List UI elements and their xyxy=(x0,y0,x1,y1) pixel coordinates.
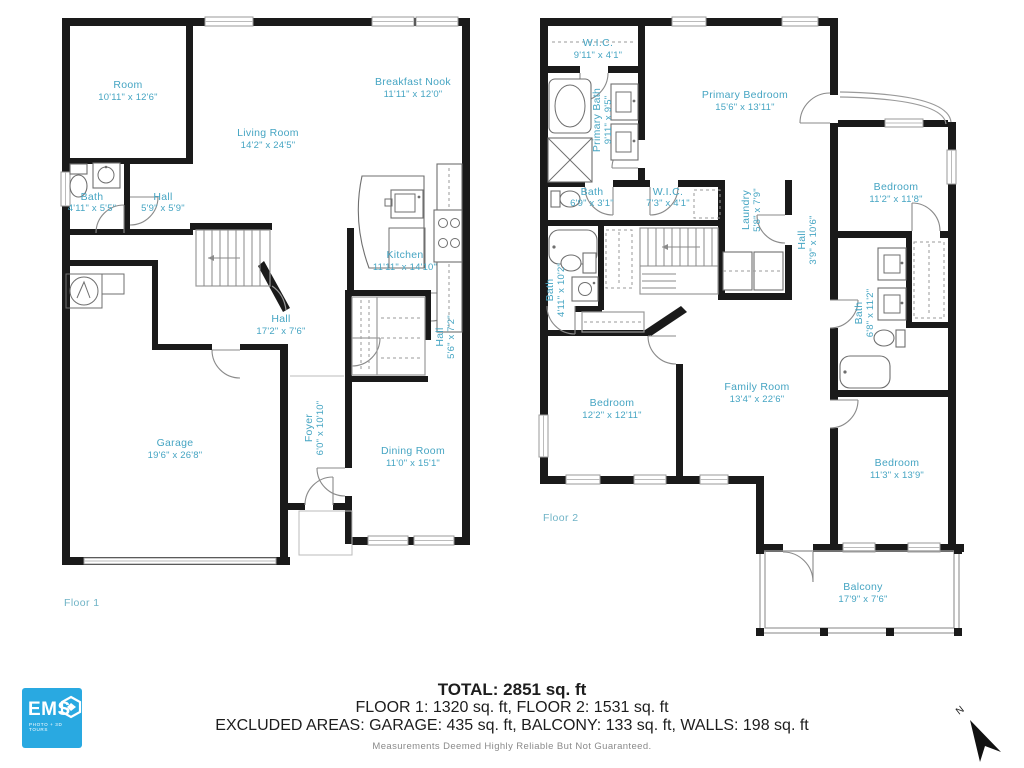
room-label-hall-long: Hall 17'2" x 7'6" xyxy=(256,313,305,337)
svg-text:Family Room: Family Room xyxy=(724,381,789,393)
svg-text:9'11" x 4'1": 9'11" x 4'1" xyxy=(574,50,623,61)
room-label-breakfast: Breakfast Nook 11'11" x 12'0" xyxy=(375,76,451,100)
svg-text:Laundry: Laundry xyxy=(740,190,752,230)
svg-text:Bath: Bath xyxy=(581,186,604,198)
svg-text:7'3" x 4'1": 7'3" x 4'1" xyxy=(646,198,690,209)
floorplan-canvas: Room 10'11" x 12'6" Living Room 14'2" x … xyxy=(0,0,1024,768)
svg-text:Garage: Garage xyxy=(157,437,194,449)
room-label-bedroom-br: Bedroom 11'3" x 13'9" xyxy=(870,457,924,481)
svg-text:9'11" x 9'5": 9'11" x 9'5" xyxy=(603,96,614,145)
svg-text:14'2" x 24'5": 14'2" x 24'5" xyxy=(241,140,296,151)
svg-text:Foyer: Foyer xyxy=(303,414,315,443)
room-label-dining: Dining Room 11'0" x 15'1" xyxy=(381,445,445,469)
floor2-stairs xyxy=(640,228,718,294)
floor2-doors xyxy=(547,73,940,582)
svg-text:Room: Room xyxy=(113,79,142,91)
room-label-bath-right: Bath 6'8" x 11'2" xyxy=(853,289,876,338)
svg-text:Bath: Bath xyxy=(544,279,556,302)
stove-icon xyxy=(434,210,462,262)
svg-text:10'11" x 12'6": 10'11" x 12'6" xyxy=(98,92,157,103)
svg-text:5'8" x 7'9": 5'8" x 7'9" xyxy=(752,188,763,232)
svg-text:19'6" x 26'8": 19'6" x 26'8" xyxy=(148,450,203,461)
entry-porch xyxy=(299,511,352,555)
summary-disclaimer: Measurements Deemed Highly Reliable But … xyxy=(0,741,1024,752)
svg-text:Bedroom: Bedroom xyxy=(874,181,919,193)
room-label-bedroom-tr: Bedroom 11'2" x 11'8" xyxy=(869,181,922,205)
door-arc xyxy=(547,73,940,582)
svg-text:Bedroom: Bedroom xyxy=(875,457,920,469)
svg-text:Bedroom: Bedroom xyxy=(590,397,635,409)
svg-text:5'9" x 5'9": 5'9" x 5'9" xyxy=(141,203,185,214)
room-label-hall-small: Hall 5'9" x 5'9" xyxy=(141,191,185,214)
svg-text:Primary Bedroom: Primary Bedroom xyxy=(702,89,788,101)
svg-text:4'11" x 10'2": 4'11" x 10'2" xyxy=(556,263,567,317)
svg-text:17'9" x 7'6": 17'9" x 7'6" xyxy=(838,594,887,605)
svg-text:W.I.C.: W.I.C. xyxy=(583,37,613,49)
room-label-bedroom-left: Bedroom 12'2" x 12'11" xyxy=(582,397,641,421)
room-label-laundry: Laundry 5'8" x 7'9" xyxy=(740,188,763,232)
room-label-balcony: Balcony 17'9" x 7'6" xyxy=(838,581,887,605)
room-label-family: Family Room 13'4" x 22'6" xyxy=(724,381,789,405)
water-heater-icon xyxy=(66,274,124,308)
floorplan-page: Room 10'11" x 12'6" Living Room 14'2" x … xyxy=(0,0,1024,768)
svg-text:Primary Bath: Primary Bath xyxy=(591,88,603,152)
room-label-garage: Garage 19'6" x 26'8" xyxy=(148,437,203,461)
linen-closet xyxy=(914,242,944,318)
room-label-foyer: Foyer 6'0" x 10'10" xyxy=(303,401,326,456)
svg-text:6'9" x 3'1": 6'9" x 3'1" xyxy=(570,198,614,209)
svg-text:Hall: Hall xyxy=(434,327,446,346)
svg-text:11'11" x 12'0": 11'11" x 12'0" xyxy=(384,89,443,100)
room-label-hall: Hall 3'9" x 10'6" xyxy=(796,215,819,264)
logo-hexagon-icon xyxy=(58,694,84,720)
room-label-primary-bath: Primary Bath 9'11" x 9'5" xyxy=(591,88,614,152)
room-label-wic1: W.I.C. 9'11" x 4'1" xyxy=(574,37,623,61)
room-label-primary-bedroom: Primary Bedroom 15'6" x 13'11" xyxy=(702,89,788,113)
floor1-plan: Room 10'11" x 12'6" Living Room 14'2" x … xyxy=(61,17,470,609)
floor2-label: Floor 2 xyxy=(543,512,578,524)
room-label-living: Living Room 14'2" x 24'5" xyxy=(237,127,299,151)
garage-door xyxy=(84,558,276,564)
washer-dryer-icon xyxy=(723,252,783,290)
floor1-stairs xyxy=(196,230,286,310)
floor2-plan: W.I.C. 9'11" x 4'1" Primary Bath 9'11" x… xyxy=(539,17,964,636)
shower-icon xyxy=(548,138,592,182)
svg-text:13'4" x 22'6": 13'4" x 22'6" xyxy=(730,394,785,405)
svg-text:Hall: Hall xyxy=(796,230,808,249)
svg-text:6'8" x 11'2": 6'8" x 11'2" xyxy=(865,289,876,338)
room-label-bath-small: Bath 6'9" x 3'1" xyxy=(570,186,614,209)
logo-tagline: PHOTO + 3D TOURS xyxy=(29,722,82,732)
bathtub-icon xyxy=(840,356,890,388)
double-vanity-icon xyxy=(878,248,906,320)
svg-text:6'0" x 10'10": 6'0" x 10'10" xyxy=(315,401,326,456)
svg-text:3'9" x 10'6": 3'9" x 10'6" xyxy=(808,215,819,264)
svg-text:W.I.C.: W.I.C. xyxy=(653,186,683,198)
svg-text:Hall: Hall xyxy=(271,313,290,325)
svg-text:Dining Room: Dining Room xyxy=(381,445,445,457)
linen-closet xyxy=(606,230,632,288)
svg-text:Bath: Bath xyxy=(81,191,104,203)
svg-text:11'3" x 13'9": 11'3" x 13'9" xyxy=(870,470,924,481)
floor1-label: Floor 1 xyxy=(64,597,99,609)
sink-icon xyxy=(93,163,120,188)
svg-text:Living Room: Living Room xyxy=(237,127,299,139)
svg-text:17'2" x 7'6": 17'2" x 7'6" xyxy=(256,326,305,337)
svg-text:11'2" x 11'8": 11'2" x 11'8" xyxy=(869,194,922,205)
floor1-labels: Room 10'11" x 12'6" Living Room 14'2" x … xyxy=(64,76,457,609)
summary-excluded: EXCLUDED AREAS: GARAGE: 435 sq. ft, BALC… xyxy=(0,717,1024,735)
svg-text:Hall: Hall xyxy=(153,191,172,203)
svg-text:4'11" x 5'5": 4'11" x 5'5" xyxy=(68,203,117,214)
svg-text:Bath: Bath xyxy=(853,302,865,325)
room-label-room: Room 10'11" x 12'6" xyxy=(98,79,157,103)
double-vanity-icon xyxy=(611,84,638,160)
summary-total: TOTAL: 2851 sq. ft xyxy=(0,680,1024,700)
sink-icon xyxy=(572,277,598,301)
room-label-wic2: W.I.C. 7'3" x 4'1" xyxy=(646,186,690,209)
svg-text:Breakfast Nook: Breakfast Nook xyxy=(375,76,451,88)
svg-text:15'6" x 13'11": 15'6" x 13'11" xyxy=(715,102,774,113)
ems-logo: EMS PHOTO + 3D TOURS xyxy=(22,688,82,748)
bathtub-icon xyxy=(549,79,591,133)
svg-text:12'2" x 12'11": 12'2" x 12'11" xyxy=(582,410,641,421)
svg-text:11'11" x 14'10": 11'11" x 14'10" xyxy=(373,262,437,273)
svg-text:Balcony: Balcony xyxy=(843,581,883,593)
svg-text:11'0" x 15'1": 11'0" x 15'1" xyxy=(386,458,440,469)
svg-text:Kitchen: Kitchen xyxy=(386,249,423,261)
toilet-icon xyxy=(874,330,905,347)
svg-text:5'6" x 7'2": 5'6" x 7'2" xyxy=(446,315,457,359)
summary-floors: FLOOR 1: 1320 sq. ft, FLOOR 2: 1531 sq. … xyxy=(0,699,1024,717)
